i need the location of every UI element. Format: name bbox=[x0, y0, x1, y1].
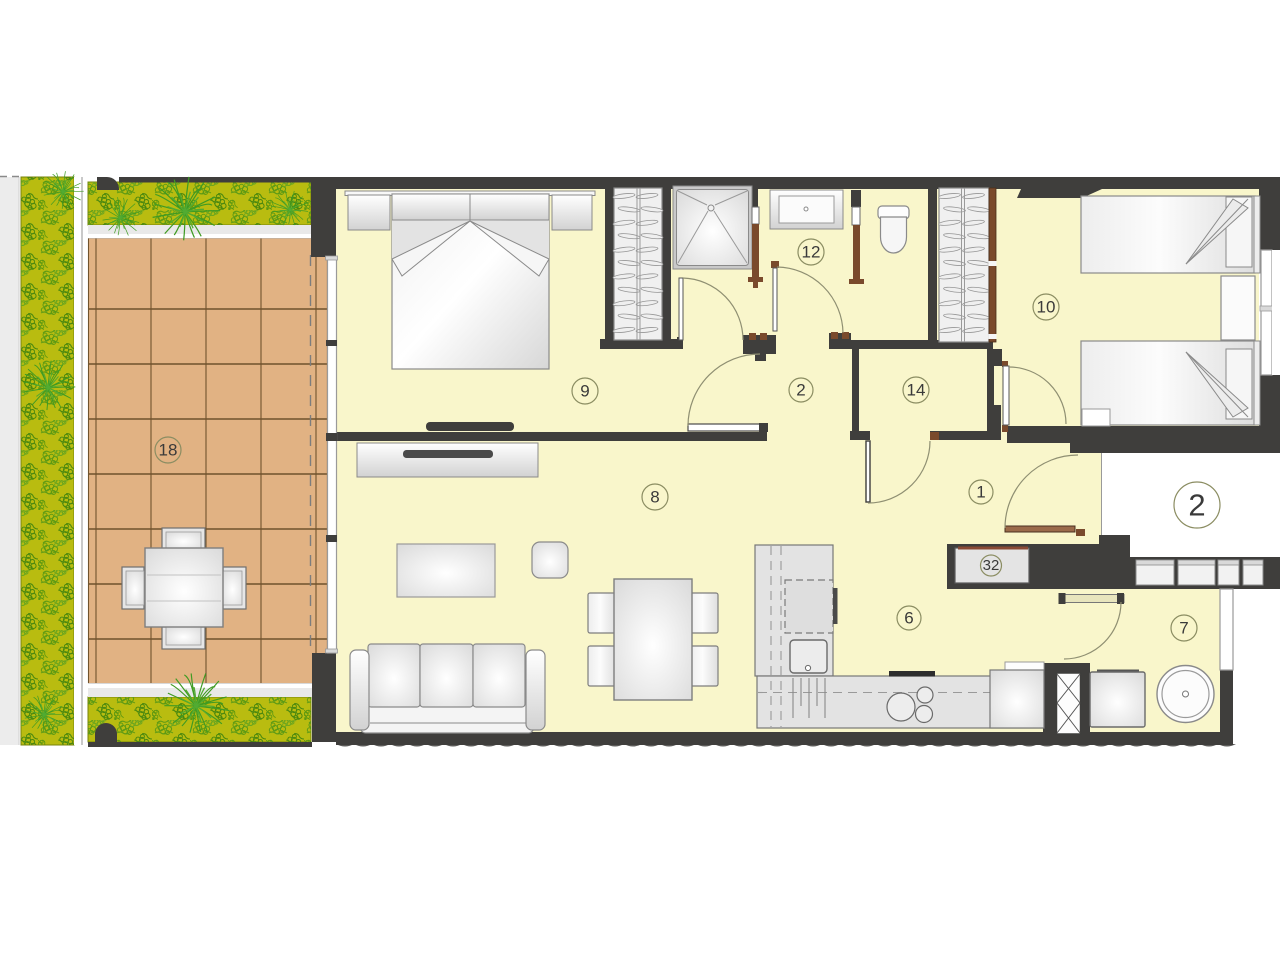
svg-text:7: 7 bbox=[1179, 619, 1188, 638]
svg-text:8: 8 bbox=[650, 488, 659, 507]
svg-text:6: 6 bbox=[904, 609, 913, 628]
svg-text:2: 2 bbox=[796, 381, 805, 400]
svg-text:32: 32 bbox=[983, 557, 1000, 574]
svg-text:14: 14 bbox=[907, 381, 926, 400]
svg-text:18: 18 bbox=[159, 441, 178, 460]
svg-text:12: 12 bbox=[802, 243, 821, 262]
svg-text:2: 2 bbox=[1188, 488, 1205, 523]
svg-text:1: 1 bbox=[976, 483, 985, 502]
svg-text:9: 9 bbox=[580, 382, 589, 401]
svg-text:10: 10 bbox=[1037, 298, 1056, 317]
